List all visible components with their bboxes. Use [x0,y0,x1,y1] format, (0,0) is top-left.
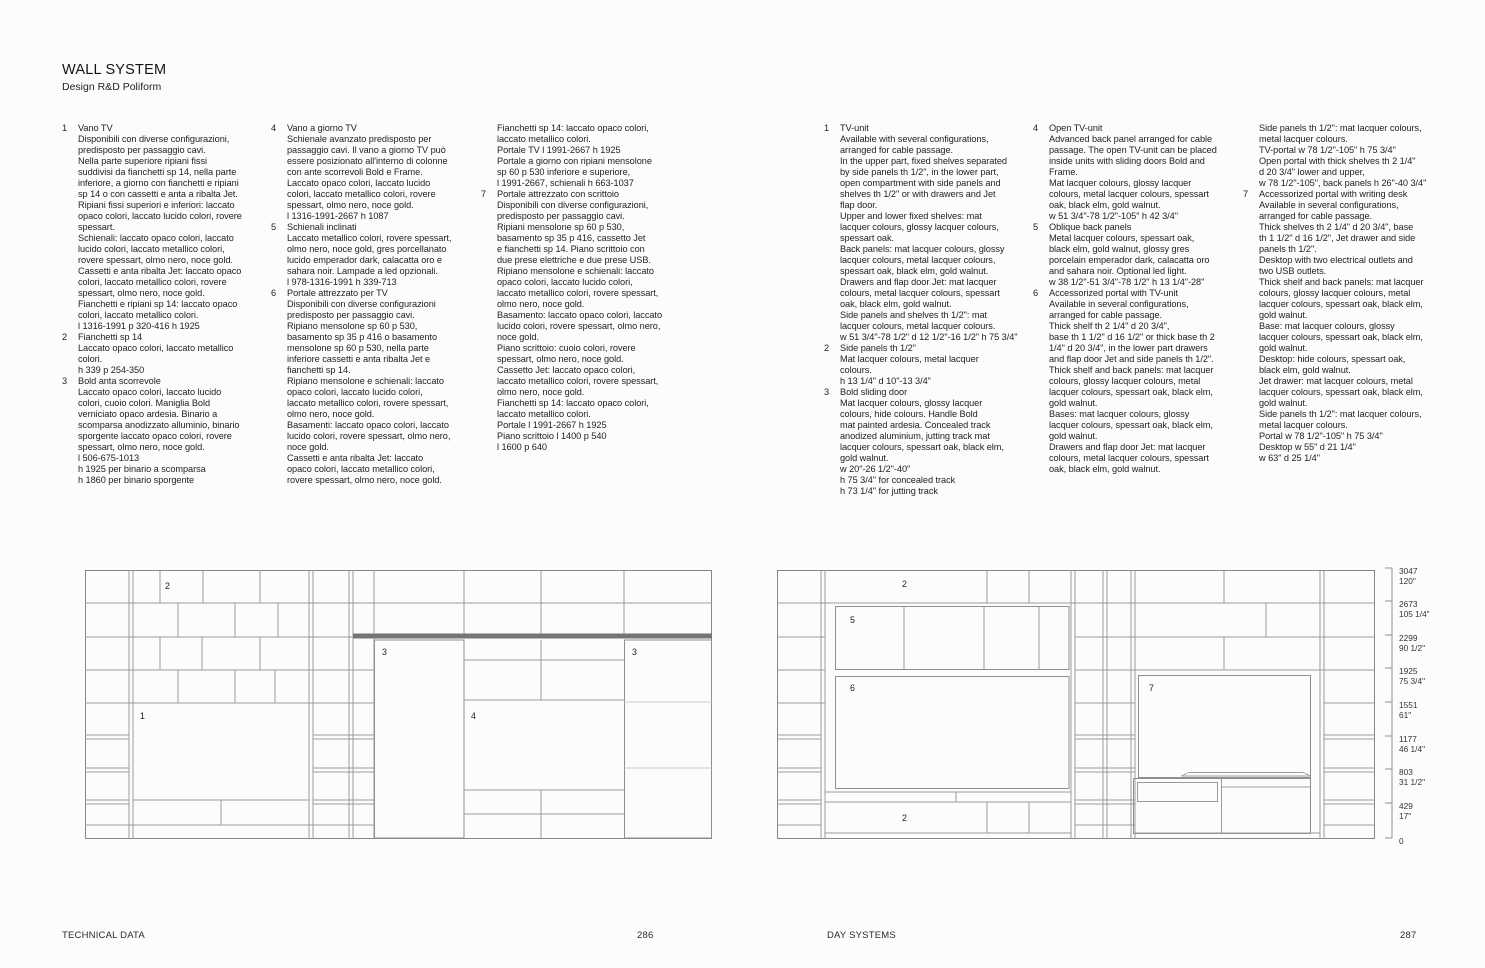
item-line: inferiore cassetti e anta ribalta Jet e [287,354,476,365]
item-line: Desktop: hide colours, spessart oak, [1259,354,1448,365]
item-lines: Vano TVDisponibili con diverse configura… [78,123,267,332]
item-number: 2 [824,343,829,354]
item-number: 3 [62,376,67,387]
item-line: lacquer colours, glossy lacquer colours, [840,222,1029,233]
item-line: metal lacquer colours. [1259,134,1448,145]
callout-3b: 3 [632,647,637,657]
item-line: TV-portal w 78 1/2"-105" h 75 3/4" [1259,145,1448,156]
item-line: passage. The open TV-unit can be placed [1049,145,1238,156]
item-line: rovere spessart, olmo nero, noce gold. [78,255,267,266]
item-line: Laccato opaco colori, laccato lucido [78,387,267,398]
catalog-page: WALL SYSTEM Design R&D Poliform 1 Vano T… [0,0,1485,968]
item-line: colori. [78,354,267,365]
item-line: Accessorized portal with TV-unit [1049,288,1238,299]
svg-text:429: 429 [1399,801,1413,811]
item-line: passaggio cavi. Il vano a giorno TV può [287,145,476,156]
spec-item: 2 Fianchetti sp 14Laccato opaco colori, … [62,332,267,376]
item-line: spessart, olmo nero, noce gold. [78,442,267,453]
item-line: flap door. [840,200,1029,211]
svg-text:0: 0 [1399,836,1404,846]
item-line: shelves th 1/2" or with drawers and Jet [840,189,1029,200]
svg-text:31 1/2": 31 1/2" [1399,777,1425,787]
item-number: 6 [271,288,276,299]
item-line: rovere spessart, olmo nero, noce gold. [287,475,476,486]
item-line: Laccato opaco colori, laccato metallico [78,343,267,354]
spec-item: 3 Bold sliding doorMat lacquer colours, … [824,387,1029,497]
item-line: Metal lacquer colours, spessart oak, [1049,233,1238,244]
scale-mark: 229990 1/2" [1385,633,1425,653]
item-line: Laccato metallico colori, rovere spessar… [287,233,476,244]
svg-text:90 1/2": 90 1/2" [1399,643,1425,653]
item-line: Disponibili con diverse configurazioni, [78,134,267,145]
item-line: Ripiano mensolone e schienali: laccato [287,376,476,387]
item-line: w 78 1/2"-105", back panels h 26"-40 3/4… [1259,178,1448,189]
item-line: con ante scorrevoli Bold e Frame. [287,167,476,178]
item-line: l 1991-2667, schienali h 663-1037 [497,178,686,189]
item-number: 5 [1033,222,1038,233]
item-line: essere posizionato all'interno di colonn… [287,156,476,167]
item-line: Back panels: mat lacquer colours, glossy [840,244,1029,255]
item-line: by side panels th 1/2", in the lower par… [840,167,1029,178]
svg-text:2299: 2299 [1399,633,1418,643]
item-line: Thick shelves th 2 1/4" d 20 3/4", base [1259,222,1448,233]
item-line: predisposto per passaggio cavi. [287,310,476,321]
item-line: arranged for cable passage. [1259,211,1448,222]
item-line: mat painted ardesia. Concealed track [840,420,1029,431]
item-line: gold walnut. [840,453,1029,464]
svg-text:17": 17" [1399,811,1411,821]
spec-item: 7 Portale attrezzato con scrittoioDispon… [481,189,686,453]
item-line: h 75 3/4" for concealed track [840,475,1029,486]
spec-item: 5 Schienali inclinatiLaccato metallico c… [271,222,476,288]
text-column-en-3: Side panels th 1/2": mat lacquer colours… [1243,123,1448,464]
text-column-it-3: Fianchetti sp 14: laccato opaco colori,l… [481,123,686,453]
scale-mark: 155161" [1385,700,1418,720]
item-line: Available in several configurations, [1049,299,1238,310]
item-number: 6 [1033,288,1038,299]
item-line: laccato metallico colori. [497,134,686,145]
item-line: Ripiani mensolone sp 60 p 530, [497,222,686,233]
item-line: Vano a giorno TV [287,123,476,134]
spec-item: 3 Bold anta scorrevoleLaccato opaco colo… [62,376,267,486]
svg-text:803: 803 [1399,767,1413,777]
item-line: Portale attrezzato per TV [287,288,476,299]
item-lines: Open TV-unitAdvanced back panel arranged… [1049,123,1238,222]
item-line: Drawers and flap door Jet: mat lacquer [1049,442,1238,453]
item-line: Oblique back panels [1049,222,1238,233]
item-line: scomparsa anodizzato alluminio, binario [78,420,267,431]
footer-section-label: TECHNICAL DATA [62,930,145,941]
item-line: h 73 1/4" for jutting track [840,486,1029,497]
item-line: spessart, olmo nero, noce gold. [287,200,476,211]
item-line: Mat lacquer colours, glossy lacquer [840,398,1029,409]
item-line: noce gold. [287,442,476,453]
item-line: verniciato opaco ardesia. Binario a [78,409,267,420]
item-line: spessart oak. [840,233,1029,244]
item-line: Frame. [1049,167,1238,178]
right-elevation-drawing: 2 5 6 7 2 [777,570,1375,839]
item-line: Side panels and shelves th 1/2": mat [840,310,1029,321]
item-line: lacquer colours, spessart oak, black elm… [1049,387,1238,398]
item-line: laccato metallico colori. [497,409,686,420]
page-number-left: 286 [637,930,653,941]
spec-item: 1 Vano TVDisponibili con diverse configu… [62,123,267,332]
item-line: Open portal with thick shelves th 2 1/4" [1259,156,1448,167]
item-line: e fianchetti sp 14. Piano scrittoio con [497,244,686,255]
item-line: Side panels th 1/2": mat lacquer colours… [1259,123,1448,134]
item-line: lacquer colours, spessart oak, black elm… [1259,332,1448,343]
item-lines: Vano a giorno TVSchienale avanzato predi… [287,123,476,222]
item-line: Available with several configurations, [840,134,1029,145]
item-line: porcelain emperador dark, calacatta oro [1049,255,1238,266]
item-line: Ripiano mensolone e schienali: laccato [497,266,686,277]
item-line: Piano scrittoio l 1400 p 540 [497,431,686,442]
item-line: gold walnut. [1259,398,1448,409]
item-line: Basamenti: laccato opaco colori, laccato [287,420,476,431]
item-lines: Fianchetti sp 14: laccato opaco colori,l… [497,123,686,189]
item-lines: Schienali inclinatiLaccato metallico col… [287,222,476,288]
item-number: 4 [1033,123,1038,134]
item-line: fianchetti sp 14. [287,365,476,376]
item-line: black elm, gold walnut, glossy gres [1049,244,1238,255]
dimension-scale: 3047120" 2673105 1/4" 229990 1/2" 192575… [1383,560,1483,855]
item-line: In the upper part, fixed shelves separat… [840,156,1029,167]
item-line: noce gold. [497,332,686,343]
svg-text:61": 61" [1399,710,1411,720]
item-line: olmo nero, noce gold. [497,387,686,398]
item-line: 1/4" d 20 3/4", in the lower part drawer… [1049,343,1238,354]
item-line: lacquer colours, spessart oak, black elm… [840,442,1029,453]
item-line: h 1925 per binario a scomparsa [78,464,267,475]
item-line: olmo nero, noce gold. [287,409,476,420]
item-line: arranged for cable passage. [840,145,1029,156]
item-line: inferiore, a giorno con fianchetti e rip… [78,178,267,189]
scale-mark: 0 [1385,836,1404,846]
spec-item: 6 Accessorized portal with TV-unitAvaila… [1033,288,1238,475]
item-line: Accessorized portal with writing desk [1259,189,1448,200]
item-line: colours. [840,365,1029,376]
scale-mark: 42917" [1385,801,1413,821]
scale-mark: 3047120" [1385,566,1418,586]
item-line: predisposto per passaggio cavi. [78,145,267,156]
item-line: lacquer colours, spessart oak, black elm… [1259,387,1448,398]
item-line: colori, cuoio colori. Maniglia Bold [78,398,267,409]
left-elevation-drawing: 2 1 3 4 3 [85,570,712,839]
item-line: due prese elettriche e due prese USB. [497,255,686,266]
item-line: panels th 1/2". [1259,244,1448,255]
item-line: laccato metallico colori, rovere spessar… [287,398,476,409]
item-line: and flap door Jet and side panels th 1/2… [1049,354,1238,365]
item-lines: Oblique back panelsMetal lacquer colours… [1049,222,1238,288]
item-lines: TV-unitAvailable with several configurat… [840,123,1029,343]
callout-5: 5 [850,615,855,625]
item-line: and sahara noir. Optional led light. [1049,266,1238,277]
item-line: l 506-675-1013 [78,453,267,464]
item-line: sporgente laccato opaco colori, rovere [78,431,267,442]
callout-6: 6 [850,683,855,693]
item-line: lucido emperador dark, calacatta oro e [287,255,476,266]
svg-text:1551: 1551 [1399,700,1418,710]
spec-item: 2 Side panels th 1/2"Mat lacquer colours… [824,343,1029,387]
item-line: lacquer colours, metal lacquer colours. [840,321,1029,332]
item-line: Portale a giorno con ripiani mensolone [497,156,686,167]
page-number-right: 287 [1400,930,1416,941]
item-line: w 51 3/4"-78 1/2"-105" h 42 3/4" [1049,211,1238,222]
item-line: l 1316-1991-2667 h 1087 [287,211,476,222]
scale-mark: 192575 3/4" [1385,666,1425,686]
item-line: basamento sp 35 p 416, cassetto Jet [497,233,686,244]
item-line: colori, laccato metallico colori. [78,310,267,321]
item-line: olmo nero, noce gold, gres porcellanato [287,244,476,255]
spec-item: 4 Open TV-unitAdvanced back panel arrang… [1033,123,1238,222]
item-line: oak, black elm, gold walnut. [1049,200,1238,211]
item-line: laccato metallico colori, rovere spessar… [497,376,686,387]
item-line: Disponibili con diverse configurazioni, [497,200,686,211]
svg-text:2673: 2673 [1399,599,1418,609]
svg-text:1177: 1177 [1399,734,1417,744]
item-line: lacquer colours, spessart oak, black elm… [1259,299,1448,310]
item-line: h 339 p 254-350 [78,365,267,376]
item-line: Cassetti e anta ribalta Jet: laccato opa… [78,266,267,277]
item-line: anodized aluminium, jutting track mat [840,431,1029,442]
item-line: gold walnut. [1049,431,1238,442]
item-line: opaco colori, laccato metallico colori, [287,464,476,475]
item-line: Advanced back panel arranged for cable [1049,134,1238,145]
svg-text:120": 120" [1399,576,1416,586]
item-line: black elm, gold walnut. [1259,365,1448,376]
item-line: w 63" d 25 1/4" [1259,453,1448,464]
item-line: Disponibili con diverse configurazioni [287,299,476,310]
callout-2-bottom: 2 [902,813,907,823]
item-line: Ripiani fissi superiori e inferiori: lac… [78,200,267,211]
item-number: 2 [62,332,67,343]
spec-item: 4 Vano a giorno TVSchienale avanzato pre… [271,123,476,222]
item-line: Ripiano mensolone sp 60 p 530, [287,321,476,332]
callout-2: 2 [165,581,170,591]
item-line: colours, glossy lacquer colours, metal [1259,288,1448,299]
item-line: Mat lacquer colours, metal lacquer [840,354,1029,365]
item-line: l 1600 p 640 [497,442,686,453]
item-line: open compartment with side panels and [840,178,1029,189]
svg-text:105 1/4": 105 1/4" [1399,609,1430,619]
item-line: gold walnut. [1049,398,1238,409]
item-line: Bold sliding door [840,387,1029,398]
item-line: TV-unit [840,123,1029,134]
item-line: sp 14 o con cassetti e anta a ribalta Je… [78,189,267,200]
item-line: lucido colori, rovere spessart, olmo ner… [497,321,686,332]
item-line: d 20 3/4" lower and upper, [1259,167,1448,178]
item-line: Cassetto Jet: laccato opaco colori, [497,365,686,376]
svg-text:3047: 3047 [1399,566,1418,576]
item-line: Thick shelf th 2 1/4" d 20 3/4", [1049,321,1238,332]
item-lines: Bold anta scorrevoleLaccato opaco colori… [78,376,267,486]
item-line: opaco colori, laccato lucido colori, rov… [78,211,267,222]
item-line: colours, metal lacquer colours, spessart [840,288,1029,299]
item-line: Fianchetti sp 14: laccato opaco colori, [497,123,686,134]
item-line: Fianchetti sp 14 [78,332,267,343]
item-number: 7 [1243,189,1248,200]
footer-chapter-label: DAY SYSTEMS [827,930,896,941]
item-line: Basamento: laccato opaco colori, laccato [497,310,686,321]
item-line: oak, black elm, gold walnut. [840,299,1029,310]
spec-item: 5 Oblique back panelsMetal lacquer colou… [1033,222,1238,288]
item-line: Laccato opaco colori, laccato lucido [287,178,476,189]
item-line: w 38 1/2"-51 3/4"-78 1/2" h 13 1/4"-28" [1049,277,1238,288]
callout-3a: 3 [382,647,387,657]
scale-mark: 117746 1/4" [1385,734,1425,754]
item-line: sp 60 p 530 inferiore e superiore, [497,167,686,178]
item-lines: Portale attrezzato per TVDisponibili con… [287,288,476,486]
item-line: spessart. [78,222,267,233]
item-line: Side panels th 1/2" [840,343,1029,354]
item-lines: Side panels th 1/2"Mat lacquer colours, … [840,343,1029,387]
item-line: colori, laccato metallico colori, rovere [78,277,267,288]
item-line: two USB outlets. [1259,266,1448,277]
item-line: metal lacquer colours. [1259,420,1448,431]
item-line: Thick shelf and back panels: mat lacquer [1259,277,1448,288]
spec-item: Fianchetti sp 14: laccato opaco colori,l… [481,123,686,189]
item-line: lacquer colours, metal lacquer colours, [840,255,1029,266]
callout-7: 7 [1149,683,1154,693]
item-line: laccato metallico colori, rovere spessar… [497,288,686,299]
page-title: WALL SYSTEM [62,62,166,78]
item-line: gold walnut. [1259,310,1448,321]
item-line: predisposto per passaggio cavi. [497,211,686,222]
item-line: colours, metal lacquer colours, spessart [1049,189,1238,200]
item-line: olmo nero, noce gold. [497,299,686,310]
scale-mark: 80331 1/2" [1385,767,1425,787]
text-column-it-2: 4 Vano a giorno TVSchienale avanzato pre… [271,123,476,486]
item-number: 4 [271,123,276,134]
spec-item: 6 Portale attrezzato per TVDisponibili c… [271,288,476,486]
item-line: Desktop w 55" d 21 1/4" [1259,442,1448,453]
item-line: Portal w 78 1/2"-105" h 75 3/4" [1259,431,1448,442]
item-lines: Fianchetti sp 14Laccato opaco colori, la… [78,332,267,376]
item-line: Available in several configurations, [1259,200,1448,211]
svg-text:1925: 1925 [1399,666,1418,676]
item-lines: Accessorized portal with TV-unitAvailabl… [1049,288,1238,475]
item-line: suddivisi da fianchetti sp 14, nella par… [78,167,267,178]
spec-item: Side panels th 1/2": mat lacquer colours… [1243,123,1448,189]
spec-item: 7 Accessorized portal with writing deskA… [1243,189,1448,464]
item-lines: Portale attrezzato con scrittoioDisponib… [497,189,686,453]
item-number: 5 [271,222,276,233]
item-line: Desktop with two electrical outlets and [1259,255,1448,266]
item-line: Portale attrezzato con scrittoio [497,189,686,200]
item-line: Drawers and flap door Jet: mat lacquer [840,277,1029,288]
item-line: opaco colori, laccato lucido colori, [287,387,476,398]
item-line: Schienali inclinati [287,222,476,233]
item-line: Fianchetti e ripiani sp 14: laccato opac… [78,299,267,310]
item-line: gold walnut. [1259,343,1448,354]
item-lines: Accessorized portal with writing deskAva… [1259,189,1448,464]
page-subtitle: Design R&D Poliform [62,81,166,93]
item-line: w 20"-26 1/2"-40" [840,464,1029,475]
item-line: Thick shelf and back panels: mat lacquer [1049,365,1238,376]
item-line: base th 1 1/2" d 16 1/2" or thick base t… [1049,332,1238,343]
item-line: spessart, olmo nero, noce gold. [78,288,267,299]
item-line: Mat lacquer colours, glossy lacquer [1049,178,1238,189]
item-line: Cassetti e anta ribalta Jet: laccato [287,453,476,464]
item-line: Vano TV [78,123,267,134]
item-line: h 13 1/4" d 10"-13 3/4" [840,376,1029,387]
item-line: Bases: mat lacquer colours, glossy [1049,409,1238,420]
item-line: colours, hide colours. Handle Bold [840,409,1029,420]
item-line: h 1860 per binario sporgente [78,475,267,486]
item-line: colours, metal lacquer colours, spessart [1049,453,1238,464]
item-line: inside units with sliding doors Bold and [1049,156,1238,167]
item-line: arranged for cable passage. [1049,310,1238,321]
item-line: sahara noir. Lampade a led opzionali. [287,266,476,277]
item-line: Side panels th 1/2": mat lacquer colours… [1259,409,1448,420]
item-line: Schienale avanzato predisposto per [287,134,476,145]
text-column-it-1: 1 Vano TVDisponibili con diverse configu… [62,123,267,486]
svg-text:46 1/4": 46 1/4" [1399,744,1425,754]
item-number: 1 [62,123,67,134]
item-line: Base: mat lacquer colours, glossy [1259,321,1448,332]
item-line: l 978-1316-1991 h 339-713 [287,277,476,288]
item-line: Bold anta scorrevole [78,376,267,387]
item-line: Portale l 1991-2667 h 1925 [497,420,686,431]
item-number: 3 [824,387,829,398]
callout-1: 1 [140,711,145,721]
item-line: Upper and lower fixed shelves: mat [840,211,1029,222]
item-lines: Side panels th 1/2": mat lacquer colours… [1259,123,1448,189]
svg-text:75 3/4": 75 3/4" [1399,676,1425,686]
item-line: basamento sp 35 p 416 o basamento [287,332,476,343]
item-line: spessart, olmo nero, noce gold. [497,354,686,365]
item-line: lucido colori, rovere spessart, olmo ner… [287,431,476,442]
item-line: Fianchetti sp 14: laccato opaco colori, [497,398,686,409]
callout-4: 4 [471,711,476,721]
item-line: colours, glossy lacquer colours, metal [1049,376,1238,387]
callout-2-top: 2 [902,579,907,589]
item-lines: Bold sliding doorMat lacquer colours, gl… [840,387,1029,497]
item-number: 1 [824,123,829,134]
spec-item: 1 TV-unitAvailable with several configur… [824,123,1029,343]
item-line: w 51 3/4"-78 1/2" d 12 1/2"-16 1/2" h 75… [840,332,1029,343]
item-line: opaco colori, laccato lucido colori, [497,277,686,288]
item-line: mensolone sp 60 p 530, nella parte [287,343,476,354]
item-line: Nella parte superiore ripiani fissi [78,156,267,167]
text-column-en-1: 1 TV-unitAvailable with several configur… [824,123,1029,497]
item-line: spessart oak, black elm, gold walnut. [840,266,1029,277]
item-line: Schienali: laccato opaco colori, laccato [78,233,267,244]
item-line: th 1 1/2" d 16 1/2", Jet drawer and side [1259,233,1448,244]
item-line: colori, laccato metallico colori, rovere [287,189,476,200]
item-line: oak, black elm, gold walnut. [1049,464,1238,475]
item-line: lacquer colours, spessart oak, black elm… [1049,420,1238,431]
page-header: WALL SYSTEM Design R&D Poliform [62,62,166,93]
item-line: lucido colori, laccato metallico colori, [78,244,267,255]
item-line: Jet drawer: mat lacquer colours, metal [1259,376,1448,387]
item-number: 7 [481,189,486,200]
item-line: Portale TV l 1991-2667 h 1925 [497,145,686,156]
item-line: Open TV-unit [1049,123,1238,134]
text-column-en-2: 4 Open TV-unitAdvanced back panel arrang… [1033,123,1238,475]
item-line: Piano scrittoio: cuoio colori, rovere [497,343,686,354]
item-line: l 1316-1991 p 320-416 h 1925 [78,321,267,332]
